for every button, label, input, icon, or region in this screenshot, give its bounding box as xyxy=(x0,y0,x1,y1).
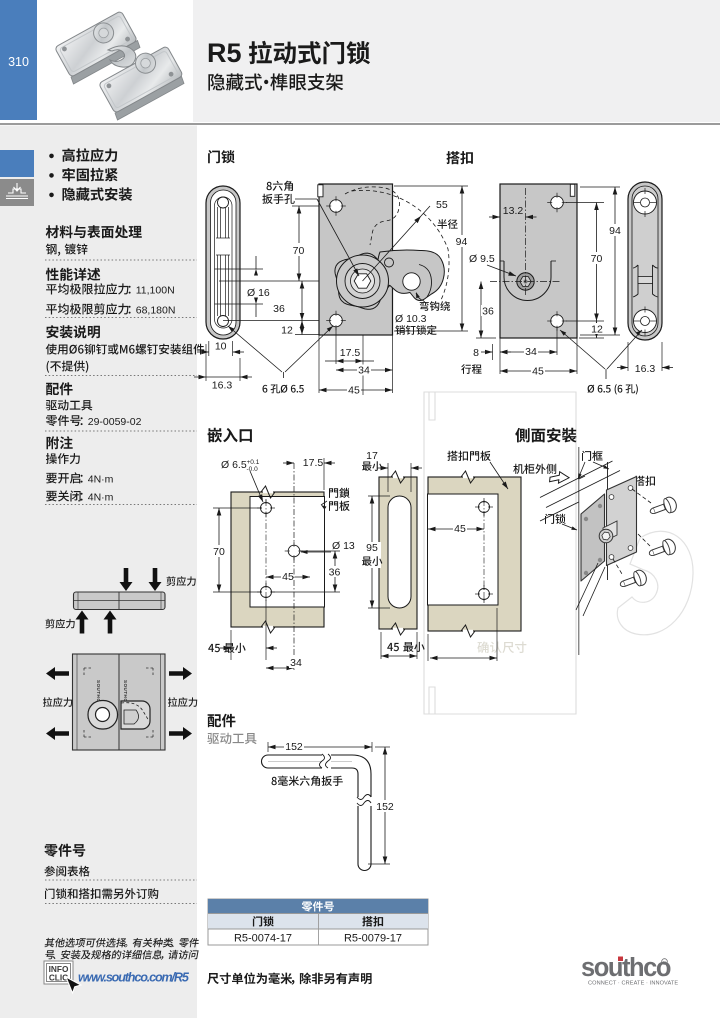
svg-text:152: 152 xyxy=(376,801,394,813)
svg-text:+0.1: +0.1 xyxy=(247,459,260,466)
svg-text:45: 45 xyxy=(532,366,544,378)
svg-text:17: 17 xyxy=(366,450,378,462)
svg-text:34: 34 xyxy=(358,365,370,377)
svg-text:R5: R5 xyxy=(207,38,242,68)
svg-text:CONNECT · CREATE · INNOVATE: CONNECT · CREATE · INNOVATE xyxy=(588,981,678,987)
svg-text:34: 34 xyxy=(290,657,302,669)
svg-text:36: 36 xyxy=(329,567,341,579)
svg-text:Ø 13: Ø 13 xyxy=(332,540,355,552)
svg-text:36: 36 xyxy=(273,303,285,315)
svg-text:70: 70 xyxy=(293,245,305,257)
svg-text:12: 12 xyxy=(281,325,293,337)
svg-text:68,180N: 68,180N xyxy=(136,305,176,317)
svg-text:45: 45 xyxy=(282,571,294,583)
svg-text:R: R xyxy=(663,960,666,965)
svg-text:11,100N: 11,100N xyxy=(136,285,175,297)
svg-text:12: 12 xyxy=(591,324,603,336)
svg-text:45: 45 xyxy=(348,385,360,397)
svg-text:16.3: 16.3 xyxy=(635,363,656,375)
svg-text:Ø 16: Ø 16 xyxy=(247,287,270,299)
svg-text:70: 70 xyxy=(213,546,225,558)
svg-text:152: 152 xyxy=(285,741,303,753)
svg-text:R5-0074-17: R5-0074-17 xyxy=(234,933,292,945)
svg-text:70: 70 xyxy=(591,253,603,265)
svg-text:29-0059-02: 29-0059-02 xyxy=(88,416,142,428)
svg-text:45: 45 xyxy=(454,523,466,535)
svg-text:4N·m: 4N·m xyxy=(88,474,114,486)
svg-text:17.5: 17.5 xyxy=(340,347,361,359)
svg-text:94: 94 xyxy=(456,236,468,248)
svg-text:R5-0079-17: R5-0079-17 xyxy=(344,933,402,945)
svg-text:CLIC: CLIC xyxy=(49,973,68,983)
svg-text:10: 10 xyxy=(215,341,227,353)
svg-text:8: 8 xyxy=(473,347,479,359)
svg-text:34: 34 xyxy=(525,346,537,358)
svg-text:www.southco.com/R5: www.southco.com/R5 xyxy=(78,971,190,985)
svg-text:4N·m: 4N·m xyxy=(88,492,114,504)
svg-text:-0.0: -0.0 xyxy=(247,466,259,473)
svg-text:Ø 10.3: Ø 10.3 xyxy=(395,313,427,325)
svg-text:16.3: 16.3 xyxy=(212,380,233,392)
svg-text:36: 36 xyxy=(482,306,494,318)
svg-text:Ø 6.5: Ø 6.5 xyxy=(221,459,247,471)
svg-text:95: 95 xyxy=(366,542,378,554)
svg-text:13.2: 13.2 xyxy=(503,205,524,217)
svg-text:310: 310 xyxy=(8,55,29,69)
svg-text:17.5: 17.5 xyxy=(303,457,324,469)
svg-text:55: 55 xyxy=(436,199,448,211)
svg-text:Ø 9.5: Ø 9.5 xyxy=(469,253,495,265)
svg-text:southco: southco xyxy=(581,954,671,982)
svg-text:94: 94 xyxy=(609,225,621,237)
